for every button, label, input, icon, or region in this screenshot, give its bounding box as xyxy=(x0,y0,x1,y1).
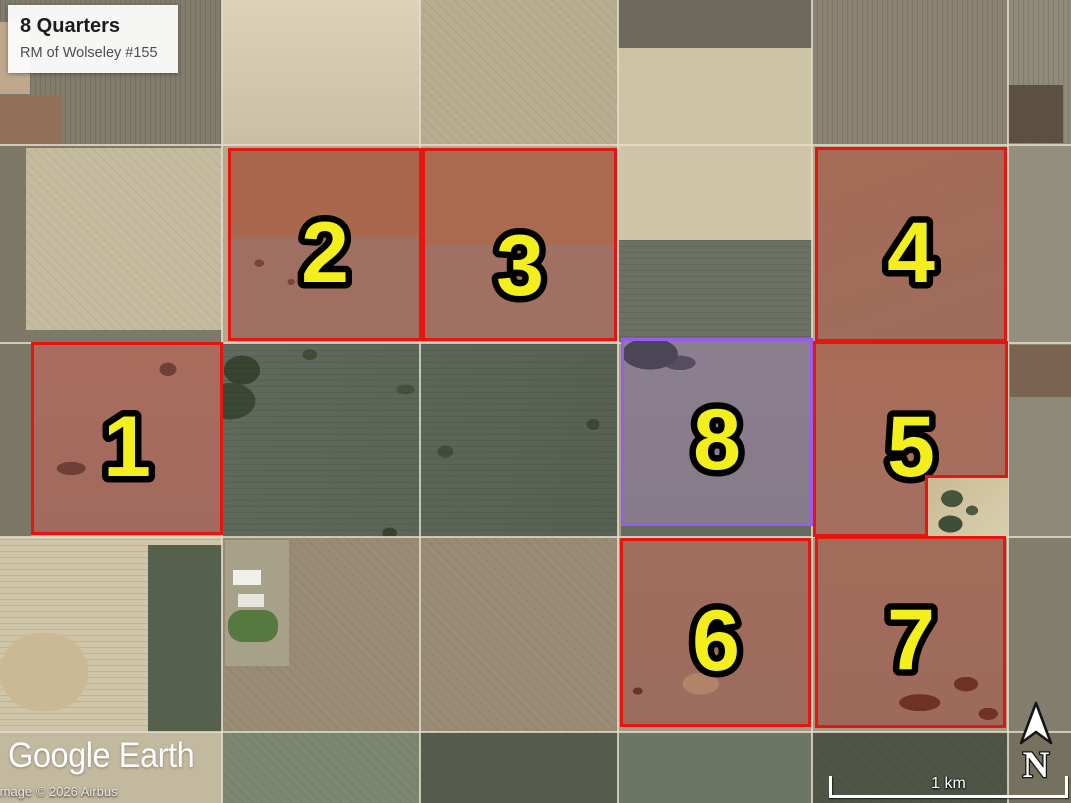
terrain-field xyxy=(0,343,31,537)
parcel-3-label: 3 xyxy=(450,203,590,313)
terrain-field xyxy=(618,0,812,48)
parcel-1[interactable]: 1 xyxy=(31,342,223,535)
terrain-field xyxy=(420,732,618,803)
road-line xyxy=(0,731,1071,733)
terrain-field xyxy=(1008,145,1071,343)
parcel-number: 8 xyxy=(693,392,741,488)
road-line xyxy=(419,0,421,803)
parcel-number: 2 xyxy=(301,205,349,301)
parcel-5-excluded-farmyard xyxy=(925,475,1008,537)
parcel-number: 4 xyxy=(887,205,935,301)
parcel-3[interactable]: 3 xyxy=(422,148,617,341)
parcel-number: 7 xyxy=(887,592,935,688)
terrain-field xyxy=(618,732,812,803)
terrain-field xyxy=(1010,345,1071,397)
farm-lawn xyxy=(228,610,278,642)
slough-area xyxy=(148,545,222,732)
north-arrow-icon: N xyxy=(1013,701,1059,783)
farm-building xyxy=(233,570,261,585)
google-earth-logo: Google Earth xyxy=(8,736,194,776)
parcel-4-label: 4 xyxy=(841,190,981,300)
terrain-field xyxy=(618,145,812,240)
north-label: N xyxy=(1023,745,1050,786)
north-arrow-shape xyxy=(1021,703,1051,743)
terrain-field xyxy=(0,95,62,147)
parcel-2-label: 2 xyxy=(255,190,395,300)
parcel-6-label: 6 xyxy=(646,578,786,688)
parcel-number: 3 xyxy=(496,218,544,314)
parcel-7[interactable]: 7 xyxy=(815,536,1006,728)
scale-bar-line xyxy=(829,795,1068,798)
terrain-field xyxy=(618,48,812,145)
parcel-1-label: 1 xyxy=(57,384,197,494)
parcel-7-label: 7 xyxy=(841,577,981,687)
parcel-number: 1 xyxy=(103,399,151,495)
terrain-field xyxy=(1008,85,1063,143)
title-card: 8 Quarters RM of Wolseley #155 xyxy=(8,5,178,73)
terrain-field xyxy=(618,240,812,343)
terrain-field xyxy=(222,732,420,803)
parcel-6[interactable]: 6 xyxy=(620,538,811,727)
road-line xyxy=(0,144,1071,146)
terrain-field xyxy=(26,148,222,330)
parcel-5[interactable]: 5 xyxy=(813,341,1008,537)
satellite-map[interactable]: 1 2 3 4 5 8 6 7 8 Quarters RM of Wolsele… xyxy=(0,0,1071,803)
terrain-field xyxy=(222,0,420,145)
parcel-2[interactable]: 2 xyxy=(228,148,422,341)
pasture-field xyxy=(222,343,621,537)
page-subtitle: RM of Wolseley #155 xyxy=(20,45,166,61)
terrain-field xyxy=(0,633,88,711)
road-line xyxy=(617,0,619,803)
terrain-field xyxy=(420,0,618,145)
copyright-text: Image © 2026 Airbus xyxy=(0,784,118,799)
parcel-8[interactable]: 8 xyxy=(621,338,813,526)
page-title: 8 Quarters xyxy=(20,15,166,38)
parcel-number: 6 xyxy=(692,593,740,689)
parcel-4[interactable]: 4 xyxy=(815,147,1007,342)
farm-building xyxy=(238,594,264,607)
parcel-8-label: 8 xyxy=(647,377,787,487)
terrain-field xyxy=(812,0,1008,145)
